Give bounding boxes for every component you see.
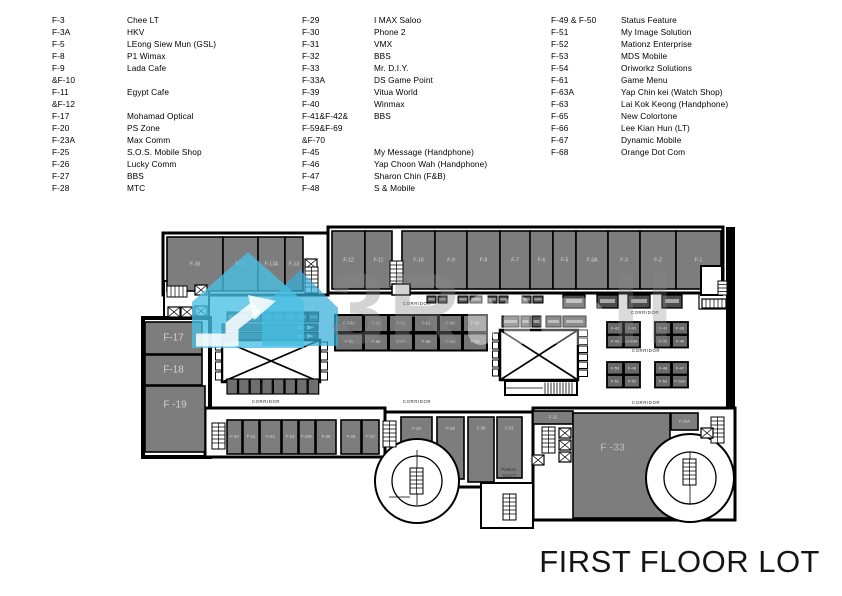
floorplan-unit: F-32 (533, 411, 573, 424)
unit-label: F-20 (230, 434, 239, 439)
floorplan-unit: F-8 (467, 231, 500, 289)
stairs-icon (212, 423, 225, 449)
floorplan-unit: F-27 (362, 420, 379, 454)
unit-label: F-17 (163, 333, 184, 344)
floorplan-unit: F-7 (500, 231, 530, 289)
watermark-text-left: 3R (330, 253, 464, 365)
unit-label: F -19 (163, 400, 187, 411)
small-lot-row (227, 379, 319, 394)
elevator-icon (559, 440, 571, 450)
unit-label: F-26 (347, 434, 356, 439)
elevator-icon (181, 307, 193, 317)
unit-label: F-18 (163, 365, 184, 376)
spiral-stair-tower (375, 439, 459, 523)
unit-label: F-32 (549, 415, 558, 420)
floorplan-unit: F-21 (243, 420, 259, 454)
unit-label: F-48 (659, 365, 668, 370)
unit-label: F-5 (561, 257, 569, 263)
page-title: FIRST FLOOR LOT (539, 544, 820, 580)
spiral-stair-tower (646, 434, 734, 522)
unit-label: F-23 (286, 434, 295, 439)
unit-label: F-51 (611, 378, 620, 383)
unit-label: F-47 (676, 365, 685, 370)
unit-label: F-52 (628, 378, 637, 383)
stairs-icon (503, 494, 516, 520)
floorplan-unit: F -19 (145, 386, 205, 452)
unit-label: F-3A (587, 257, 599, 263)
floorplan-unit: F-23A (299, 420, 315, 454)
unit-label: F-1 (695, 257, 703, 263)
stairs-icon (542, 427, 555, 453)
elevator-icon (532, 455, 544, 465)
corridor-label: CORRIDOR (403, 399, 431, 404)
unit-label: F-50 (611, 365, 620, 370)
unit-label: F-22 (266, 434, 275, 439)
floorplan-unit: F-51 (607, 375, 623, 388)
unit-label: F-53A (675, 378, 686, 383)
floorplan-unit: F-23 (282, 420, 298, 454)
floorplan-unit: F-53A (672, 375, 688, 388)
floorplan-unit: F-52 (624, 375, 640, 388)
floorplan-unit: F-53 (655, 375, 671, 388)
unit-label: F-8 (480, 257, 488, 263)
floorplan-unit: F-18 (145, 355, 202, 385)
watermark-text-right: Il (612, 253, 680, 365)
unit-label: F-6 (538, 257, 546, 263)
elevator-icon (559, 452, 571, 462)
floorplan-unit: F-26 (341, 420, 361, 454)
floorplan-unit: F-3A (576, 231, 608, 289)
vent-icon (167, 286, 187, 297)
unit-label: F -33 (600, 441, 625, 453)
unit-label: F-16 (190, 261, 201, 267)
unit-label: F-33A (679, 419, 690, 424)
elevator-icon (701, 428, 713, 438)
stairs-icon (410, 468, 423, 494)
unit-label: F-13 (289, 261, 300, 267)
unit-label: F-25 (322, 434, 331, 439)
unit-label: F-49 (628, 365, 637, 370)
unit-label: F-28 (412, 426, 421, 431)
unit-label: F-29 (446, 426, 455, 431)
unit-label: F-21 (247, 434, 256, 439)
public-toilet-label: PUBLIC (501, 467, 516, 472)
floorplan-unit: F-6 (530, 231, 553, 289)
floorplan-unit: F-5 (553, 231, 576, 289)
unit-label: F-23A (301, 434, 313, 439)
right-entrance (699, 266, 727, 309)
corridor-label: CORRIDOR (632, 400, 660, 405)
elevator-icon (559, 428, 571, 438)
unit-label: F-7 (511, 257, 519, 263)
corridor-label: CORRIDOR (252, 399, 280, 404)
stairs-icon (683, 459, 696, 485)
stairs-icon (383, 421, 396, 447)
floorplan-unit: F-25 (316, 420, 336, 454)
floorplan: F-16F-15F-13AF-13F-12F-11F-10F-9F-8F-7F-… (0, 0, 842, 596)
floorplan-unit: F-30 (468, 417, 494, 482)
unit-label: F-27 (366, 434, 375, 439)
unit-label: F-53 (659, 378, 668, 383)
floorplan-unit: F-22 (260, 420, 281, 454)
elevator-icon (168, 307, 180, 317)
floorplan-unit: F-20 (227, 420, 242, 454)
floorplan-unit: F-33A (671, 413, 698, 430)
unit-label: F-13A (265, 261, 279, 267)
unit-label: F-30 (477, 426, 486, 431)
unit-label: F-31 (505, 426, 514, 431)
public-toilet-label: TOILET (502, 474, 517, 479)
